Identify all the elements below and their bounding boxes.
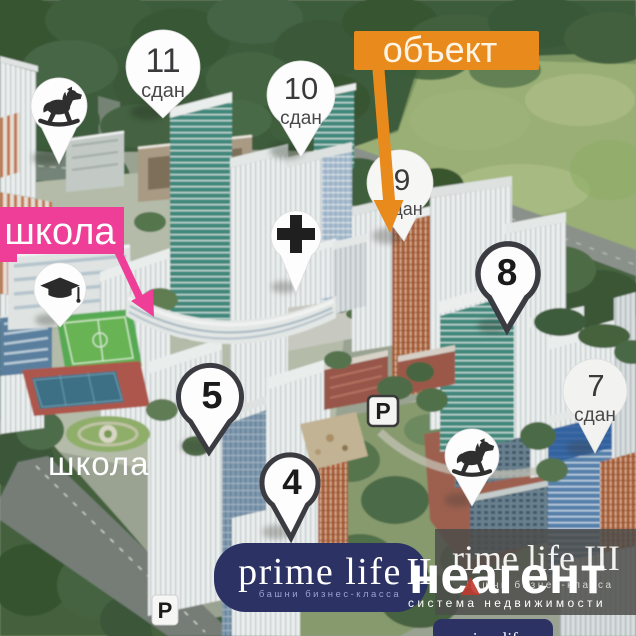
svg-text:5: 5 (201, 375, 222, 417)
svg-text:11: 11 (145, 42, 180, 80)
svg-text:7: 7 (587, 368, 604, 403)
svg-text:P: P (158, 598, 173, 623)
svg-text:9: 9 (394, 164, 411, 197)
svg-text:школа: школа (4, 211, 116, 253)
svg-text:8: 8 (497, 252, 518, 293)
svg-text:prime life: prime life (238, 551, 402, 593)
svg-text:сдан: сдан (280, 108, 322, 129)
svg-text:10: 10 (284, 71, 318, 106)
svg-text:сдан: сдан (141, 80, 185, 102)
svg-text:башни бизнес-класса: башни бизнес-класса (259, 589, 401, 600)
svg-text:P: P (375, 398, 390, 424)
svg-text:школа: школа (48, 445, 150, 482)
svg-text:система недвижимости: система недвижимости (408, 596, 606, 610)
svg-text:сдан: сдан (574, 405, 616, 426)
svg-text:4: 4 (282, 463, 302, 502)
svg-text:prime life: prime life (459, 629, 526, 636)
svg-text:объект: объект (383, 29, 498, 70)
